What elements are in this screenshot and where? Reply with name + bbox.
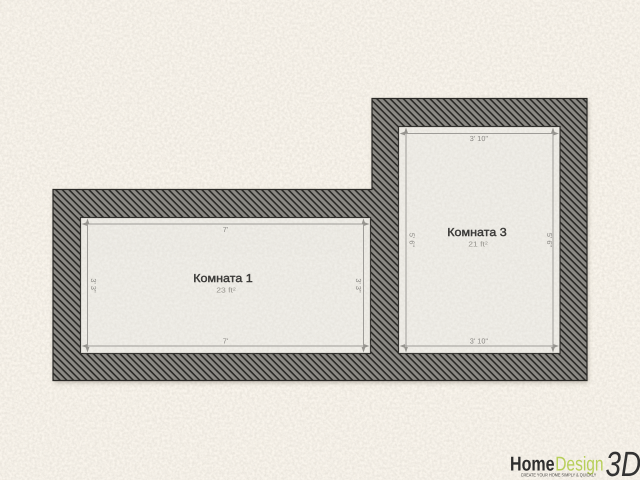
svg-text:7': 7' [223,337,229,346]
svg-text:23 ft²: 23 ft² [216,286,236,295]
svg-text:3D: 3D [606,445,640,480]
svg-text:5' 6'': 5' 6'' [408,233,417,248]
svg-text:3' 3'': 3' 3'' [89,278,98,293]
svg-text:7': 7' [223,225,229,234]
svg-text:3' 10'': 3' 10'' [470,134,489,143]
svg-text:Комната 3: Комната 3 [447,227,507,239]
svg-text:3' 3'': 3' 3'' [354,278,363,293]
svg-text:5' 6'': 5' 6'' [545,233,554,248]
svg-text:3' 10'': 3' 10'' [470,337,489,346]
svg-text:Комната 1: Комната 1 [193,273,253,285]
svg-text:CREATE YOUR HOME SIMPLY & QUIC: CREATE YOUR HOME SIMPLY & QUICKLY [521,472,597,477]
svg-text:21 ft²: 21 ft² [468,240,488,249]
